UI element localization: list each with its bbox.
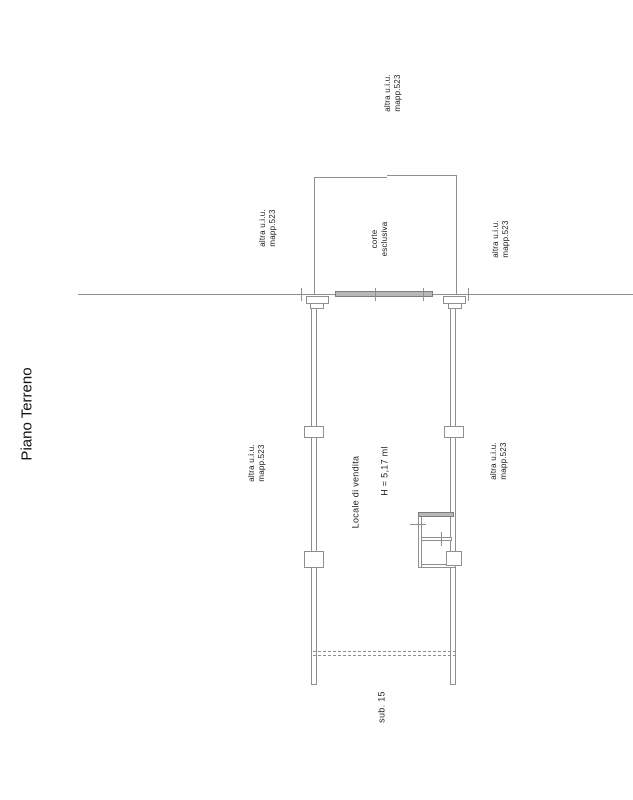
courtyard-outline-right-edge xyxy=(456,175,457,294)
shop-right-wall xyxy=(450,306,456,685)
boundary-tick-3 xyxy=(423,288,424,301)
subunit-label: sub. 15 xyxy=(377,691,388,723)
adjacent-unit-label-mid-right: altra u.i.u. mapp.523 xyxy=(489,442,509,480)
adjacent-unit-label-upper-right-line1: altra u.i.u. xyxy=(491,220,501,258)
adjacent-unit-label-upper-right-line2: mapp.523 xyxy=(501,220,511,258)
courtyard-label: corte esclusiva xyxy=(370,222,390,257)
adjacent-unit-label-upper-right: altra u.i.u. mapp.523 xyxy=(491,220,511,258)
adjacent-unit-label-top-line2: mapp.523 xyxy=(393,74,403,112)
pillar-mid-left-lower xyxy=(304,551,324,568)
courtyard-label-line1: corte xyxy=(370,222,380,257)
shop-left-wall xyxy=(311,306,317,685)
courtyard-outline-left-edge xyxy=(314,177,315,294)
wc-door-tick xyxy=(410,524,426,525)
boundary-tick-4 xyxy=(468,288,469,301)
adjacent-unit-label-mid-left-line1: altra u.i.u. xyxy=(247,444,257,482)
pillar-mid-left-upper xyxy=(304,426,324,438)
pillar-top-right-inner xyxy=(448,303,462,309)
adjacent-unit-label-mid-left: altra u.i.u. mapp.523 xyxy=(247,444,267,482)
boundary-tick-2 xyxy=(375,288,376,301)
storefront-glass-band xyxy=(335,291,433,297)
floor-title: Piano Terreno xyxy=(19,367,36,460)
ceiling-height-label: H = 5,17 ml xyxy=(380,446,391,496)
pillar-top-left-inner xyxy=(310,303,324,309)
courtyard-outline-top-left-segment xyxy=(314,177,387,178)
sales-room-label: Locale di vendita xyxy=(351,456,362,529)
wc-top-wall xyxy=(418,512,454,517)
adjacent-unit-label-upper-left: altra u.i.u. mapp.523 xyxy=(258,209,278,247)
threshold-dashed-line-2 xyxy=(313,655,456,656)
adjacent-unit-label-mid-right-line2: mapp.523 xyxy=(499,442,509,480)
pillar-mid-right-upper xyxy=(444,426,464,438)
courtyard-label-line2: esclusiva xyxy=(380,222,390,257)
wc-corner-pillar xyxy=(446,551,462,566)
wc-partition-tick xyxy=(441,532,442,546)
adjacent-unit-label-upper-left-line2: mapp.523 xyxy=(268,209,278,247)
wc-middle-wall xyxy=(421,537,452,541)
adjacent-unit-label-top: altra u.i.u. mapp.523 xyxy=(383,74,403,112)
adjacent-unit-label-mid-right-line1: altra u.i.u. xyxy=(489,442,499,480)
boundary-tick-1 xyxy=(301,288,302,301)
courtyard-outline-top-right-segment xyxy=(387,175,456,176)
adjacent-unit-label-upper-left-line1: altra u.i.u. xyxy=(258,209,268,247)
threshold-dashed-line-1 xyxy=(313,651,456,652)
floor-plan-canvas: Piano Terreno altra u.i.u. mapp.523 altr… xyxy=(0,0,633,800)
adjacent-unit-label-mid-left-line2: mapp.523 xyxy=(257,444,267,482)
adjacent-unit-label-top-line1: altra u.i.u. xyxy=(383,74,393,112)
